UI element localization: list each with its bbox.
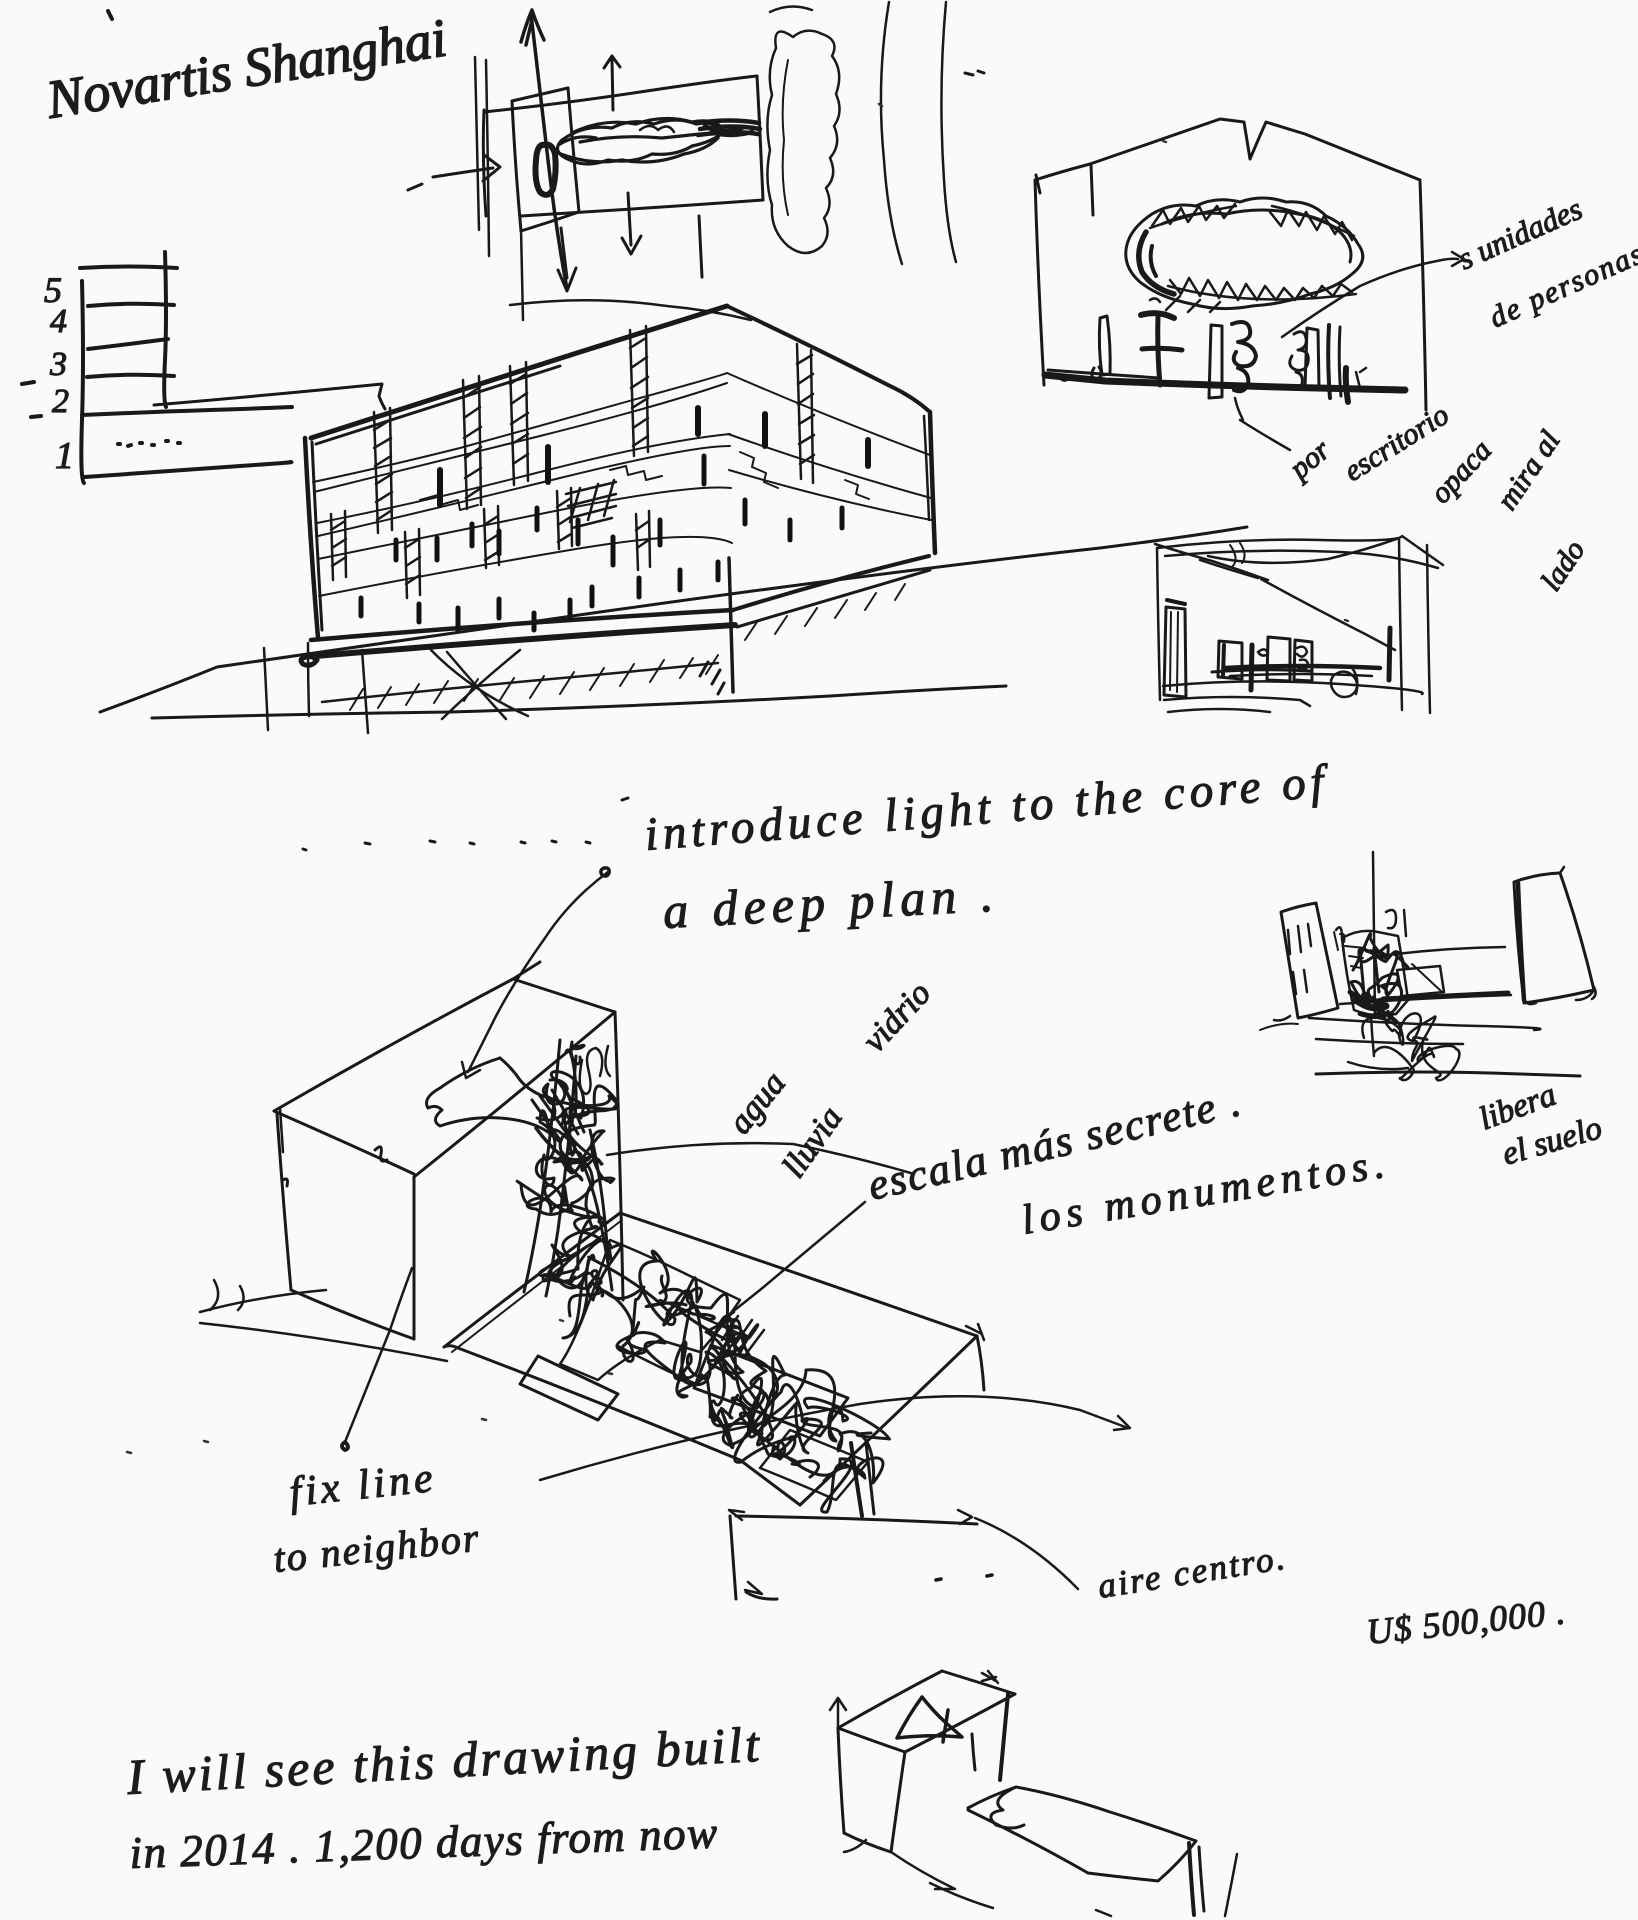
svg-text:4: 4 xyxy=(50,303,67,340)
svg-text:3: 3 xyxy=(49,346,67,383)
svg-text:2: 2 xyxy=(52,383,69,420)
svg-text:1: 1 xyxy=(55,435,74,477)
